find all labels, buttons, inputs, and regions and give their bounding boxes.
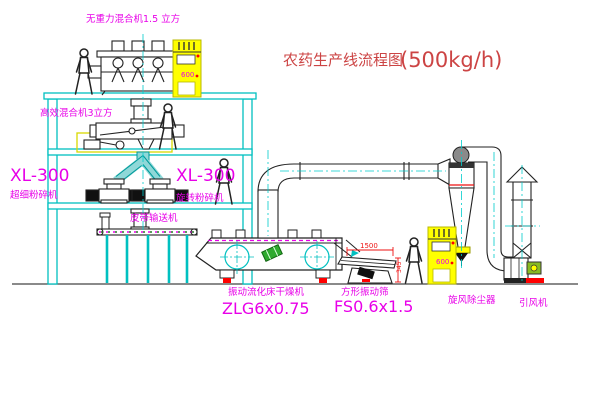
- page-title: 农药生产线流程图: [283, 51, 403, 69]
- cabinet-panel-text: 600: [181, 71, 194, 79]
- mill-left-model: XL-300: [10, 166, 69, 186]
- mill-right-model: XL-300: [176, 166, 235, 186]
- mill-right-name: 旋转粉碎机: [176, 192, 224, 204]
- sieve-model-label: FS0.6x1.5: [334, 297, 413, 316]
- control-cabinet-upper: 600: [173, 40, 201, 97]
- induced-draft-fan: [504, 258, 544, 283]
- floor-mixer-label: 高效混合机3立方: [40, 107, 113, 119]
- vibrating-sieve: 1500 345: [338, 242, 403, 283]
- control-cabinet-lower: 600: [428, 227, 456, 284]
- flow-arrow: [351, 250, 359, 257]
- mixer-pulley: [116, 141, 124, 149]
- conveyor-legs: [107, 235, 187, 283]
- sieve-width-dim: 1500: [360, 242, 378, 250]
- flow-diagram-canvas: 600: [0, 0, 600, 403]
- production-line-drawing: 600: [0, 0, 600, 403]
- belt-conveyor-label: 皮带输送机: [130, 212, 178, 224]
- fan-label: 引风机: [519, 297, 548, 309]
- mixer-motor: [84, 140, 100, 149]
- cyclone-outlet-elbow: [453, 147, 469, 163]
- top-mixer-label: 无重力混合机1.5 立方: [86, 13, 180, 25]
- cabinet-panel-text: 600: [436, 258, 449, 266]
- cyclone-label: 旋风除尘器: [448, 294, 496, 306]
- person-roof: [76, 49, 93, 94]
- page-title-capacity: (500kg/h): [400, 48, 502, 72]
- dryer-model-label: ZLG6x0.75: [222, 299, 310, 318]
- sieve-height-dim: 345: [396, 261, 403, 273]
- dryer-name-label: 振动流化床干燥机: [228, 286, 305, 298]
- mill-left-name: 超细粉碎机: [10, 189, 58, 201]
- person-ground: [406, 238, 423, 283]
